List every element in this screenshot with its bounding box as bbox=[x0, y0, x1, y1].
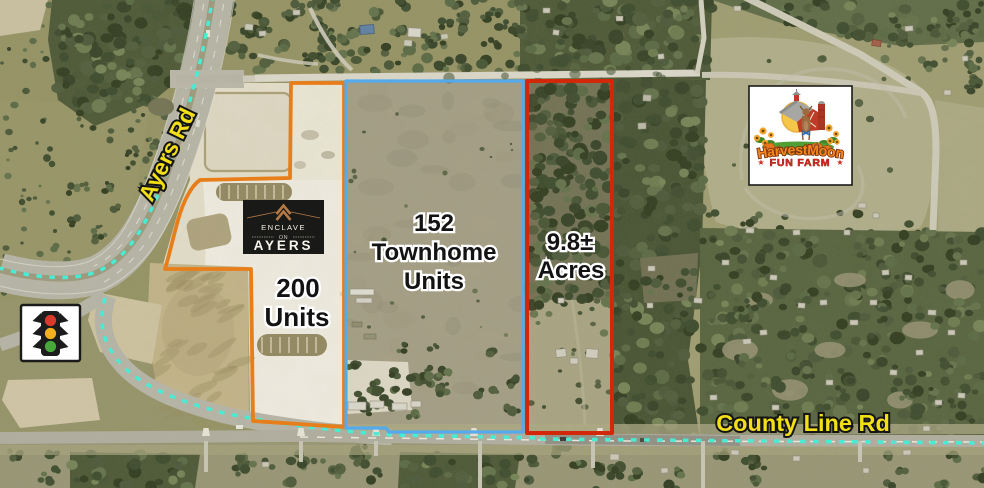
svg-text:FUN FARM: FUN FARM bbox=[770, 157, 831, 169]
svg-text:★: ★ bbox=[836, 158, 843, 167]
svg-text:AYERS: AYERS bbox=[254, 238, 314, 253]
svg-text:ENCLAVE: ENCLAVE bbox=[261, 223, 306, 232]
svg-text:★: ★ bbox=[757, 158, 764, 167]
svg-text:200: 200 bbox=[276, 273, 319, 303]
svg-text:Townhome: Townhome bbox=[372, 239, 497, 266]
svg-text:Units: Units bbox=[404, 268, 464, 295]
svg-text:152: 152 bbox=[414, 210, 454, 237]
svg-text:9.8±: 9.8± bbox=[547, 229, 594, 256]
svg-text:Units: Units bbox=[265, 302, 330, 332]
svg-text:Acres: Acres bbox=[538, 257, 605, 284]
svg-text:County Line Rd: County Line Rd bbox=[716, 410, 890, 436]
